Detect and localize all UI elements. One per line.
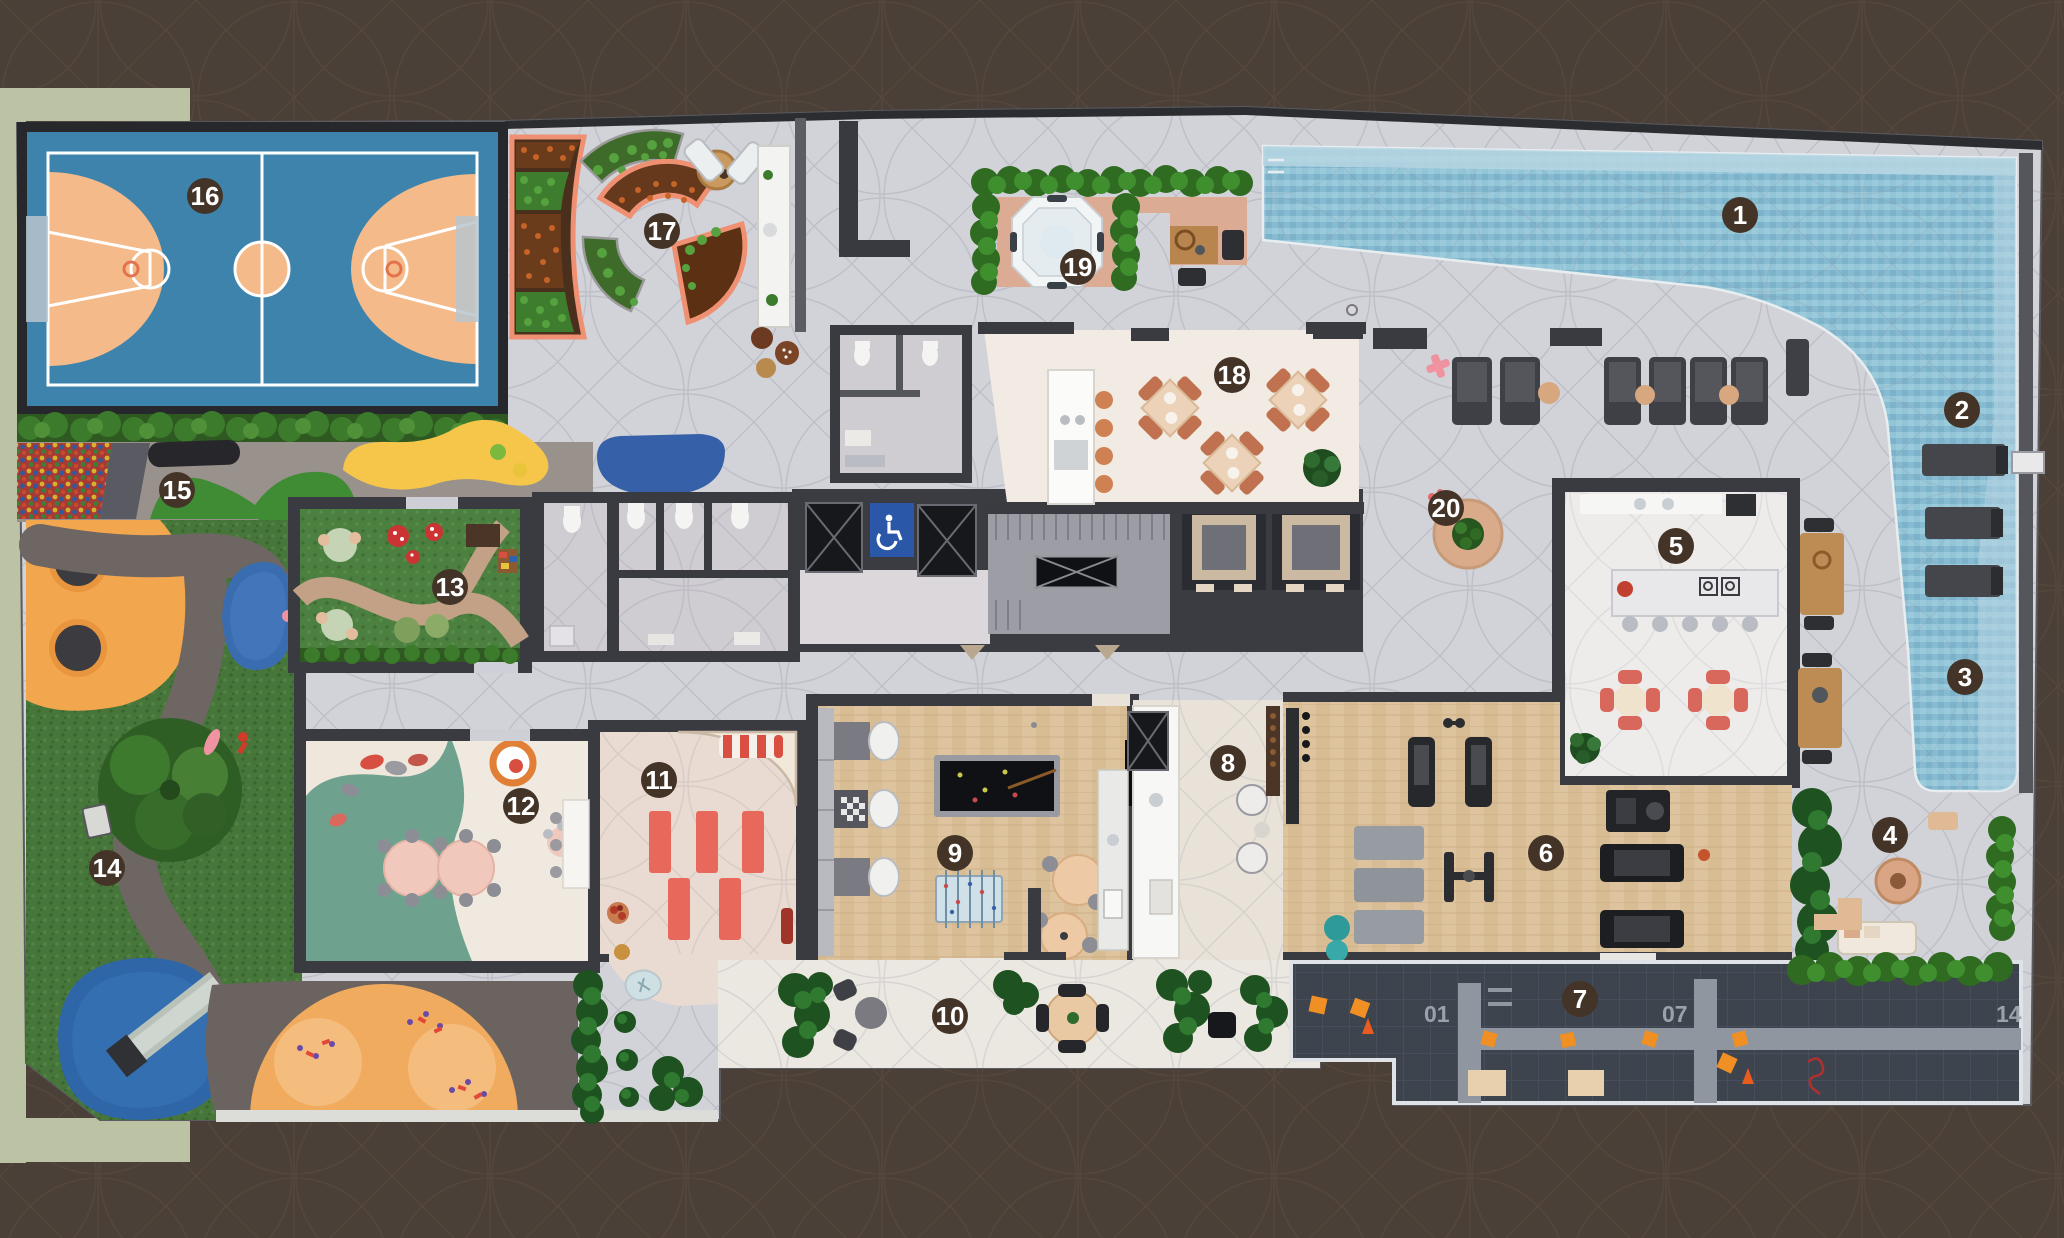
svg-text:14: 14 <box>93 853 122 883</box>
svg-text:1: 1 <box>1733 200 1747 230</box>
svg-text:5: 5 <box>1669 531 1683 561</box>
svg-text:15: 15 <box>163 475 192 505</box>
svg-text:6: 6 <box>1539 838 1553 868</box>
svg-text:12: 12 <box>507 791 536 821</box>
svg-text:01: 01 <box>1424 1001 1450 1027</box>
svg-text:16: 16 <box>191 181 220 211</box>
svg-text:11: 11 <box>645 765 673 795</box>
svg-text:7: 7 <box>1573 984 1587 1014</box>
svg-text:9: 9 <box>948 838 962 868</box>
svg-text:18: 18 <box>1218 360 1247 390</box>
svg-text:07: 07 <box>1662 1001 1688 1027</box>
svg-text:4: 4 <box>1883 820 1898 850</box>
svg-text:19: 19 <box>1064 252 1093 282</box>
svg-text:13: 13 <box>436 572 465 602</box>
svg-text:10: 10 <box>936 1001 965 1031</box>
svg-text:3: 3 <box>1958 662 1972 692</box>
svg-text:17: 17 <box>648 216 677 246</box>
svg-text:2: 2 <box>1955 395 1969 425</box>
svg-text:8: 8 <box>1221 748 1235 778</box>
svg-text:20: 20 <box>1432 493 1461 523</box>
svg-text:14: 14 <box>1996 1001 2022 1027</box>
